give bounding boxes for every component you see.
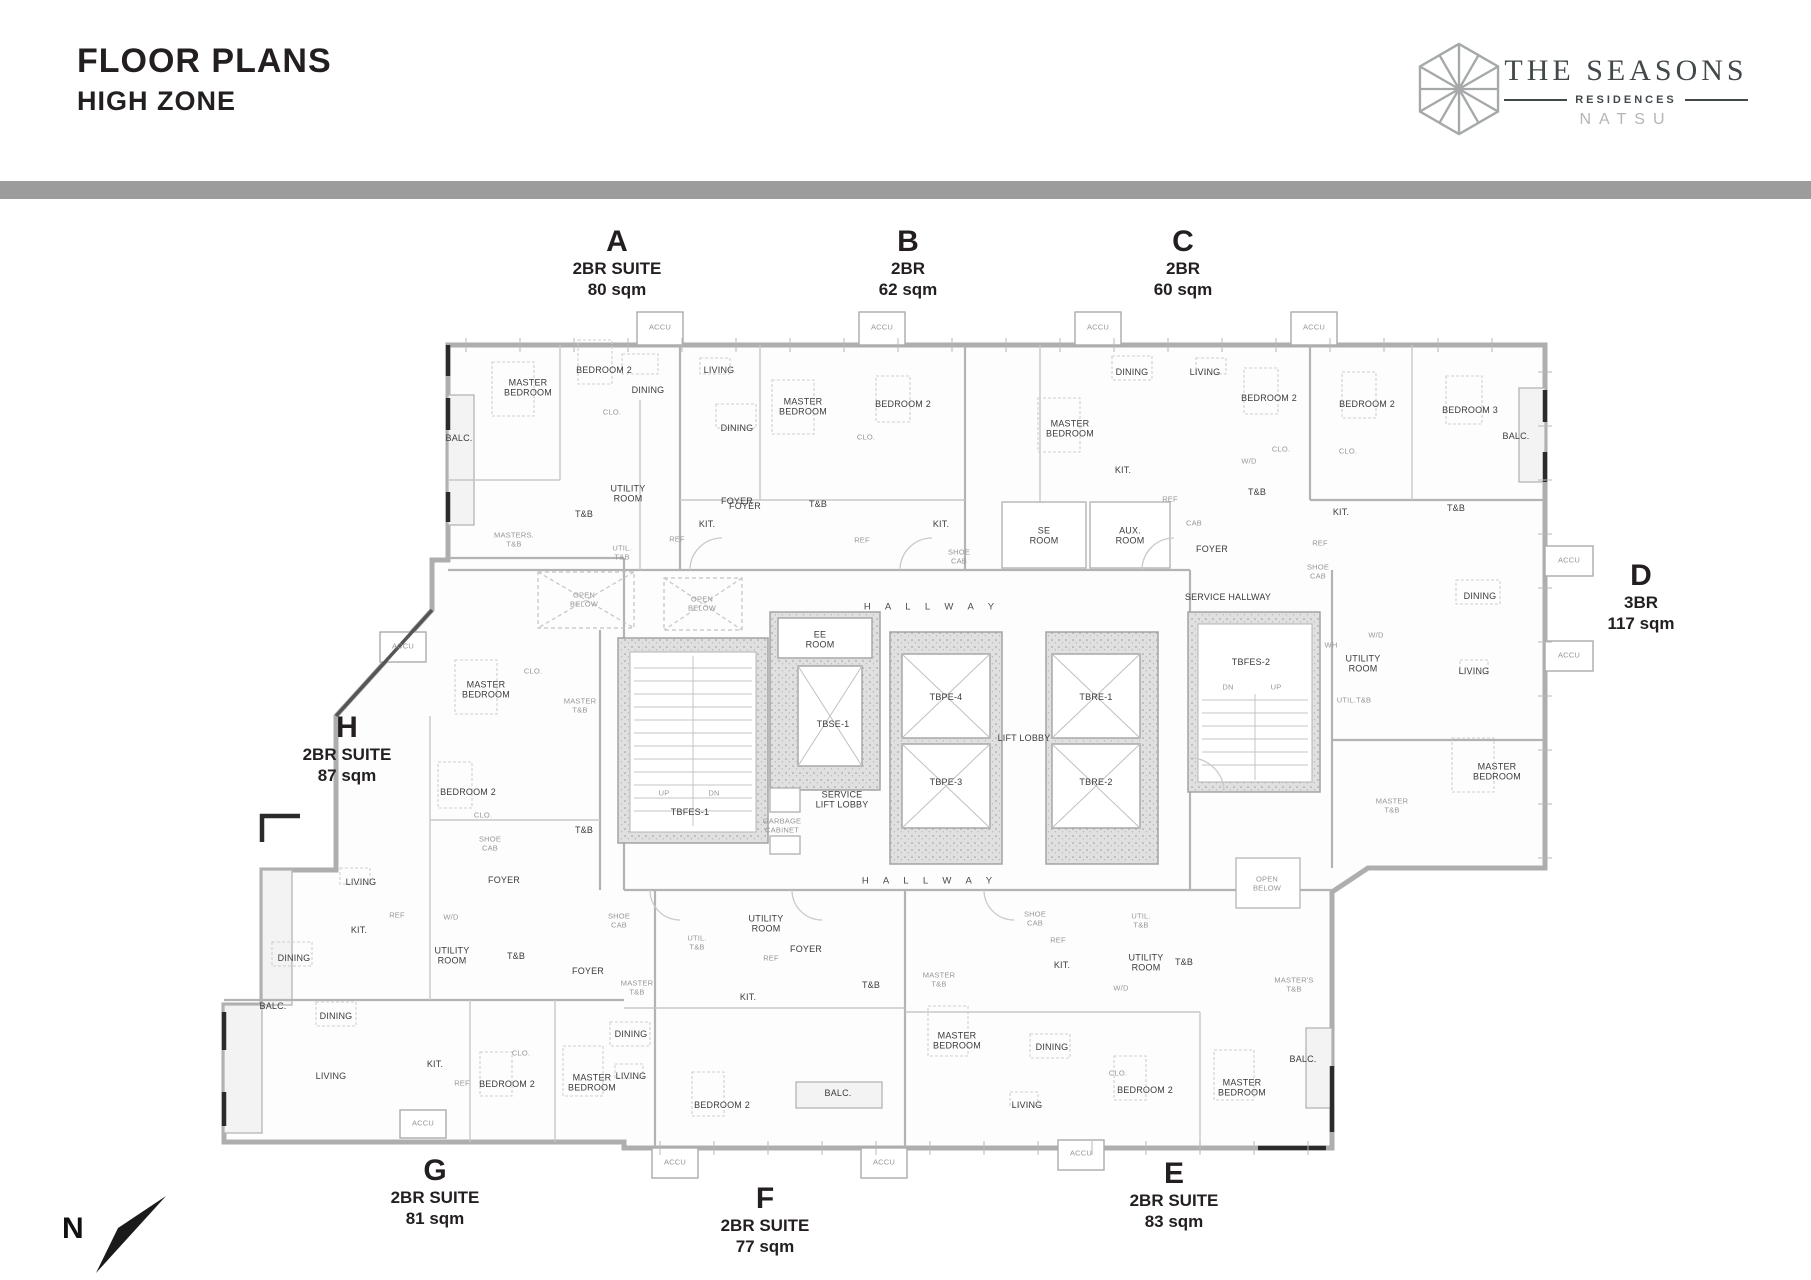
room-label: OPEN BELOW — [688, 595, 716, 612]
room-label: GARBAGE CABINET — [763, 817, 802, 834]
room-label: MASTER BEDROOM — [1473, 762, 1521, 783]
room-label: DINING — [721, 423, 754, 433]
room-label: DINING — [320, 1011, 353, 1021]
room-label: TBSE-1 — [817, 719, 850, 729]
room-label: DINING — [1036, 1042, 1069, 1052]
room-label: T&B — [1248, 487, 1266, 497]
room-label: DINING — [1464, 591, 1497, 601]
room-label: MASTER T&B — [621, 979, 653, 996]
room-label: CLO. — [474, 812, 492, 821]
room-label: BALC. — [824, 1088, 851, 1098]
room-label: BEDROOM 2 — [440, 787, 496, 797]
room-label: MASTER T&B — [923, 971, 955, 988]
room-label: KIT. — [740, 992, 756, 1002]
room-label: DINING — [1116, 367, 1149, 377]
room-label: BALC. — [1502, 431, 1529, 441]
room-label: T&B — [1447, 503, 1465, 513]
room-label: BEDROOM 2 — [479, 1079, 535, 1089]
room-label: MASTER BEDROOM — [933, 1031, 981, 1052]
room-label: TBFES-1 — [671, 807, 709, 817]
room-label: UTIL. T&B — [687, 934, 706, 951]
room-label: MASTER BEDROOM — [462, 680, 510, 701]
room-label: W/D — [1113, 985, 1128, 994]
room-label: DINING — [615, 1029, 648, 1039]
room-label: MASTER BEDROOM — [568, 1073, 616, 1094]
room-label: UP — [1271, 684, 1282, 693]
room-label: MASTER BEDROOM — [1218, 1078, 1266, 1099]
room-label: AUX. ROOM — [1116, 526, 1145, 547]
room-label: ACCU — [1558, 557, 1580, 566]
unit-label-C: C2BR60 sqm — [1154, 226, 1213, 300]
room-label: LIVING — [616, 1071, 647, 1081]
room-label: BEDROOM 3 — [1442, 405, 1498, 415]
room-label: REF — [854, 537, 870, 546]
room-label: DN — [1222, 684, 1233, 693]
room-label: CLO. — [524, 668, 542, 677]
room-label: FOYER — [572, 966, 604, 976]
room-label: OPEN BELOW — [1253, 875, 1281, 892]
room-label: BALC. — [445, 433, 472, 443]
room-label: SHOE CAB — [479, 835, 501, 852]
room-label: H A L L W A Y — [864, 603, 1000, 614]
room-label: REF — [1050, 937, 1066, 946]
room-label: TBRE-1 — [1079, 692, 1112, 702]
room-label: MASTER BEDROOM — [1046, 419, 1094, 440]
room-label: MASTER T&B — [564, 697, 596, 714]
room-label: LIVING — [1459, 666, 1490, 676]
room-label: CLO. — [603, 409, 621, 418]
room-label: ACCU — [664, 1159, 686, 1168]
room-label: BEDROOM 2 — [1241, 393, 1297, 403]
room-label: REF — [1312, 540, 1328, 549]
room-label: UTILITY ROOM — [749, 914, 784, 935]
room-label: CLO. — [857, 434, 875, 443]
room-label: UTILITY ROOM — [435, 946, 470, 967]
room-label: T&B — [575, 509, 593, 519]
unit-label-E: E2BR SUITE83 sqm — [1130, 1158, 1219, 1232]
room-label: UTIL. T&B — [612, 544, 631, 561]
room-label: REF — [454, 1080, 470, 1089]
room-label: BEDROOM 2 — [694, 1100, 750, 1110]
room-label: DN — [708, 790, 719, 799]
room-label: ACCU — [1303, 324, 1325, 333]
north-label: N — [62, 1212, 84, 1246]
room-label: KIT. — [933, 519, 949, 529]
room-label: FOYER — [790, 944, 822, 954]
unit-label-H: H2BR SUITE87 sqm — [303, 712, 392, 786]
unit-label-D: D3BR117 sqm — [1607, 560, 1674, 634]
room-label: REF — [389, 912, 405, 921]
room-label: WH — [1325, 642, 1338, 651]
room-label: CLO. — [1272, 446, 1290, 455]
room-label: W/D — [1241, 458, 1256, 467]
unit-label-B: B2BR62 sqm — [879, 226, 938, 300]
room-label: MASTER BEDROOM — [779, 397, 827, 418]
room-label: KIT. — [351, 925, 367, 935]
room-label: UTILITY ROOM — [1346, 654, 1381, 675]
room-label: W/D — [443, 914, 458, 923]
room-label: ACCU — [649, 324, 671, 333]
room-label: SE ROOM — [1030, 526, 1059, 547]
room-label: ACCU — [871, 324, 893, 333]
room-label: T&B — [507, 951, 525, 961]
room-label: CAB — [1186, 520, 1202, 529]
room-label: REF — [763, 955, 779, 964]
room-label: DINING — [632, 385, 665, 395]
room-label: UP — [659, 790, 670, 799]
room-label-layer: ACCUMASTER BEDROOMBEDROOM 2DININGCLO.BAL… — [0, 0, 1811, 1280]
room-label: MASTERS. T&B — [494, 531, 534, 548]
room-label: EE ROOM — [806, 630, 835, 651]
room-label: CLO. — [512, 1050, 530, 1059]
room-label: UTILITY ROOM — [611, 484, 646, 505]
room-label: W/D — [1368, 632, 1383, 641]
room-label: ACCU — [1558, 652, 1580, 661]
room-label: LIVING — [1012, 1100, 1043, 1110]
room-label: ACCU — [873, 1159, 895, 1168]
room-label: FOYER — [721, 496, 753, 506]
room-label: LIVING — [316, 1071, 347, 1081]
room-label: LIVING — [1190, 367, 1221, 377]
room-label: MASTER BEDROOM — [504, 378, 552, 399]
room-label: SHOE CAB — [1024, 910, 1046, 927]
room-label: SHOE CAB — [948, 548, 970, 565]
room-label: TBRE-2 — [1079, 777, 1112, 787]
room-label: H A L L W A Y — [862, 877, 998, 888]
room-label: BEDROOM 2 — [875, 399, 931, 409]
room-label: MASTER'S T&B — [1274, 976, 1313, 993]
room-label: TBFES-2 — [1232, 657, 1270, 667]
floor-plan: ACCUMASTER BEDROOMBEDROOM 2DININGCLO.BAL… — [0, 0, 1811, 1280]
floor-plan-page: FLOOR PLANS HIGH ZONE THE SEASONS RESIDE… — [0, 0, 1811, 1280]
room-label: KIT. — [1054, 960, 1070, 970]
room-label: MASTER T&B — [1376, 797, 1408, 814]
room-label: TBPE-3 — [930, 777, 963, 787]
room-label: CLO. — [1109, 1070, 1127, 1079]
room-label: LIVING — [346, 877, 377, 887]
room-label: BEDROOM 2 — [576, 365, 632, 375]
room-label: KIT. — [1333, 507, 1349, 517]
room-label: UTILITY ROOM — [1129, 953, 1164, 974]
room-label: UTIL. T&B — [1131, 912, 1150, 929]
room-label: FOYER — [1196, 544, 1228, 554]
room-label: DINING — [278, 953, 311, 963]
room-label: T&B — [862, 980, 880, 990]
room-label: BEDROOM 2 — [1117, 1085, 1173, 1095]
room-label: ACCU — [392, 643, 414, 652]
room-label: ACCU — [412, 1120, 434, 1129]
room-label: REF — [1162, 496, 1178, 505]
room-label: T&B — [575, 825, 593, 835]
room-label: BEDROOM 2 — [1339, 399, 1395, 409]
room-label: UTIL.T&B — [1337, 697, 1372, 706]
room-label: TBPE-4 — [930, 692, 963, 702]
room-label: BALC. — [259, 1001, 286, 1011]
room-label: ACCU — [1087, 324, 1109, 333]
room-label: REF — [669, 536, 685, 545]
room-label: KIT. — [699, 519, 715, 529]
room-label: LIVING — [704, 365, 735, 375]
room-label: SHOE CAB — [608, 912, 630, 929]
room-label: SHOE CAB — [1307, 563, 1329, 580]
room-label: KIT. — [427, 1059, 443, 1069]
room-label: FOYER — [488, 875, 520, 885]
room-label: T&B — [809, 499, 827, 509]
room-label: BALC. — [1289, 1054, 1316, 1064]
north-indicator: N — [56, 1178, 206, 1278]
room-label: T&B — [1175, 957, 1193, 967]
room-label: CLO. — [1339, 448, 1357, 457]
room-label: LIFT LOBBY — [998, 733, 1051, 743]
unit-label-G: G2BR SUITE81 sqm — [391, 1155, 480, 1229]
room-label: OPEN BELOW — [570, 591, 598, 608]
unit-label-F: F2BR SUITE77 sqm — [721, 1183, 810, 1257]
unit-label-A: A2BR SUITE80 sqm — [573, 226, 662, 300]
room-label: ACCU — [1070, 1150, 1092, 1159]
room-label: KIT. — [1115, 465, 1131, 475]
room-label: SERVICE LIFT LOBBY — [816, 790, 869, 811]
room-label: SERVICE HALLWAY — [1185, 592, 1271, 602]
